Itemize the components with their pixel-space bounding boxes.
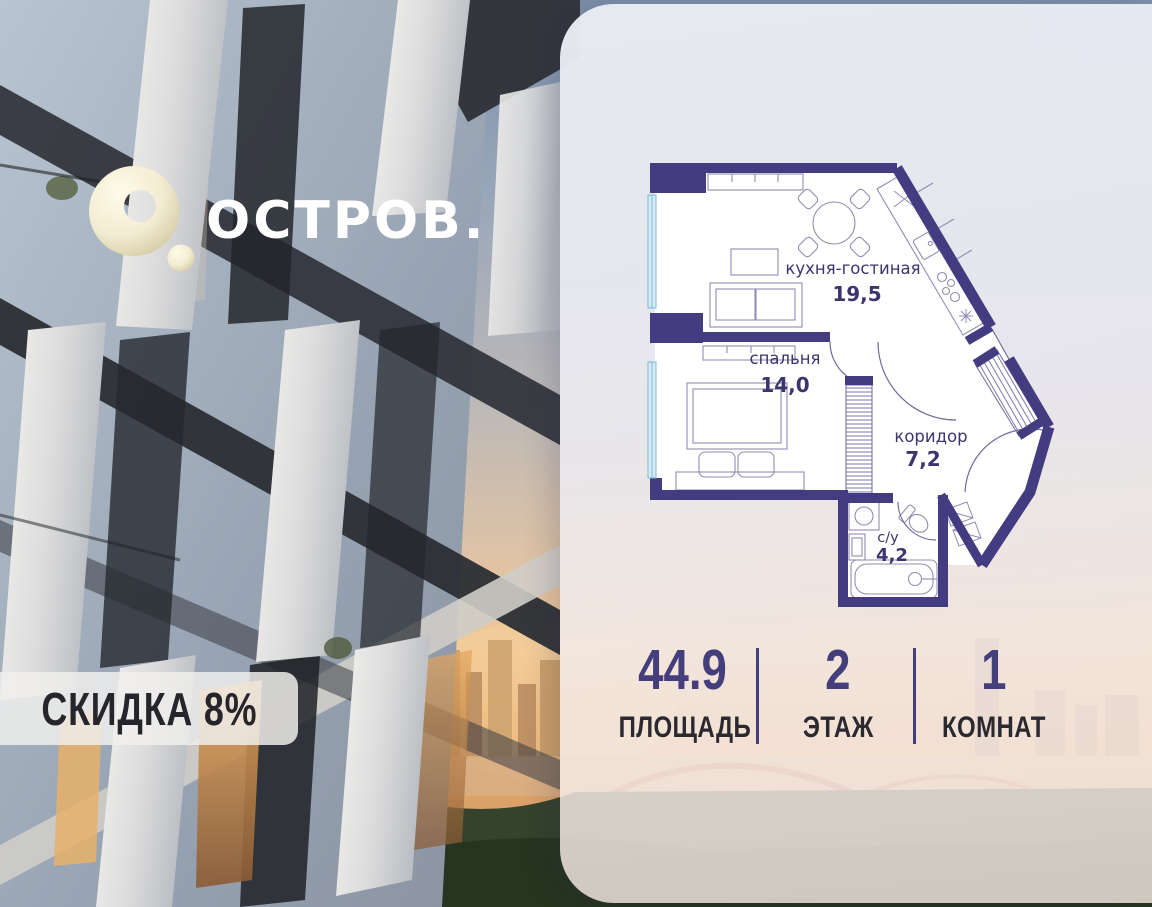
brand-logo-icon: [88, 163, 200, 275]
stat-area: 44.9 ПЛОЩАДЬ: [602, 642, 762, 743]
stat-floor-value: 2: [758, 642, 918, 699]
listing-card: ОСТРОВ. СКИДКА 8%: [0, 0, 1152, 907]
brand-wordmark: ОСТРОВ.: [206, 191, 487, 251]
brand-logo: ОСТРОВ.: [88, 163, 508, 283]
stat-rooms-label: КОМНАТ: [914, 713, 1074, 743]
stat-area-label: ПЛОЩАДЬ: [602, 713, 762, 743]
stat-rooms-value: 1: [914, 642, 1074, 699]
stat-floor-label: ЭТАЖ: [758, 713, 918, 743]
stat-area-value: 44.9: [602, 642, 762, 699]
discount-badge: СКИДКА 8%: [0, 672, 298, 745]
stat-rooms: 1 КОМНАТ: [914, 642, 1074, 743]
stat-floor: 2 ЭТАЖ: [758, 642, 918, 743]
info-panel: кухня-гостиная 19,5 спальня 14,0 коридор…: [560, 4, 1152, 903]
apartment-stats: 44.9 ПЛОЩАДЬ 2 ЭТАЖ 1 КОМНАТ: [560, 4, 1152, 903]
discount-badge-label: СКИДКА 8%: [41, 682, 257, 736]
